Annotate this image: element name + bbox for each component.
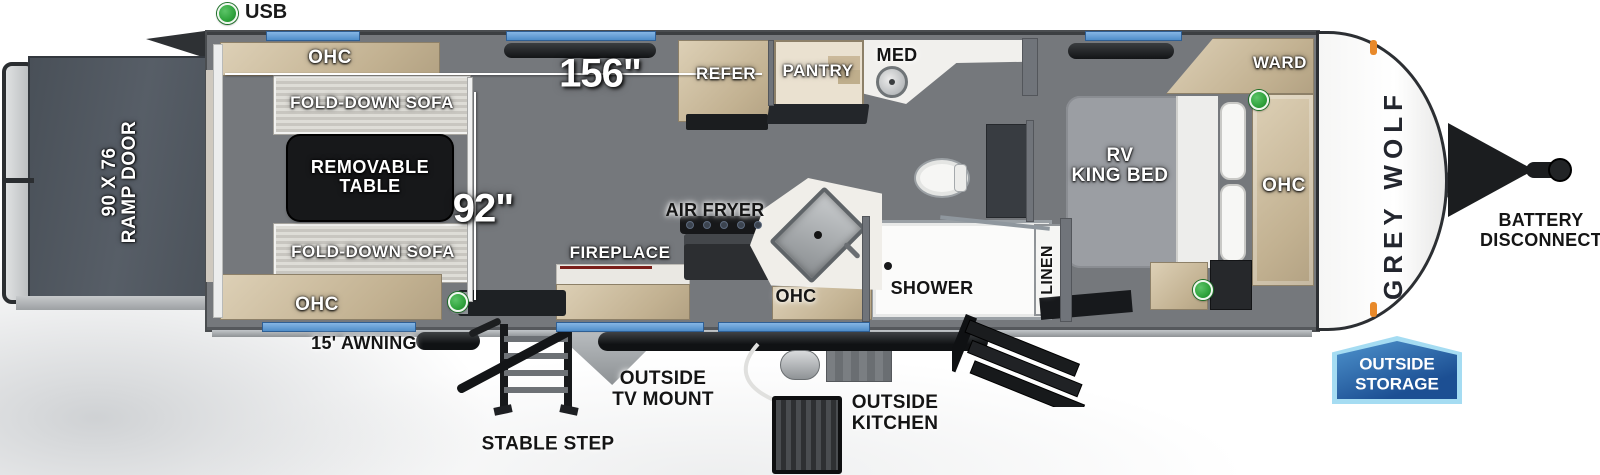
tv-mount-label-line2: TV MOUNT xyxy=(612,389,714,410)
refer-label: REFER xyxy=(696,65,756,83)
usb-legend-icon xyxy=(217,3,238,24)
tv-mount-label-line1: OUTSIDE xyxy=(620,368,707,389)
refrigerator-base xyxy=(686,114,768,130)
outside-kitchen-griddle xyxy=(772,396,842,474)
pantry-label: PANTRY xyxy=(783,62,854,80)
shower-label: SHOWER xyxy=(891,279,974,299)
ramp-door-text: RAMP DOOR xyxy=(119,121,140,243)
usb-legend-label: USB xyxy=(245,1,287,24)
kitchen-sink-drain xyxy=(814,231,822,239)
window-segment xyxy=(556,322,704,332)
ramp-rail-divider xyxy=(4,178,34,183)
window-segment xyxy=(1085,31,1182,41)
storage-label-line2: STORAGE xyxy=(1355,374,1439,393)
pantry-counter xyxy=(767,104,870,124)
garage-ohc-bottom-label: OHC xyxy=(295,295,339,315)
window-segment xyxy=(718,322,870,332)
bed-label-line1: RV xyxy=(1106,145,1133,166)
bath-bedroom-wall-top xyxy=(1022,38,1038,96)
outside-kitchen-label-line1: OUTSIDE xyxy=(852,392,939,413)
marker-light-top xyxy=(1370,40,1377,55)
kitchen-cabinet-left xyxy=(556,284,690,320)
bed-label: RV KING BED xyxy=(1072,146,1169,186)
bedroom-ohc-label: OHC xyxy=(1262,176,1306,196)
air-fryer-label: AIR FRYER xyxy=(665,201,764,221)
outside-kitchen-label-line2: KITCHEN xyxy=(852,413,939,434)
ramp-door-size: 90 X 76 xyxy=(99,148,120,217)
usb-dot xyxy=(448,292,468,312)
shower-left-wall xyxy=(862,216,870,322)
storage-label-line1: OUTSIDE xyxy=(1359,354,1435,373)
bath-bedroom-wall-mid xyxy=(1026,120,1034,222)
ramp-door-frame xyxy=(213,44,223,318)
shower xyxy=(870,220,1052,320)
stove-burner-4 xyxy=(737,221,745,229)
window-segment xyxy=(262,322,416,332)
battery-label-line2: DISCONNECT xyxy=(1480,230,1600,250)
dimension-line-156 xyxy=(225,73,762,75)
bed-label-line2: KING BED xyxy=(1072,165,1169,186)
battery-label-line1: BATTERY xyxy=(1498,210,1583,230)
refer-pantry-wall xyxy=(768,40,774,106)
linen-right-wall xyxy=(1060,218,1072,322)
removable-label-line1: REMOVABLE xyxy=(311,157,429,177)
removable-table-label: REMOVABLE TABLE xyxy=(311,158,429,196)
ward-label: WARD xyxy=(1253,54,1307,72)
outside-kitchen-label: OUTSIDE KITCHEN xyxy=(852,393,939,435)
bed-sheet xyxy=(1176,96,1218,268)
linen-label: LINEN xyxy=(1039,245,1057,295)
stove-burner-5 xyxy=(754,221,762,229)
usb-dot xyxy=(1249,90,1269,110)
toilet-tank xyxy=(954,164,967,192)
window-segment xyxy=(266,31,360,41)
stable-step xyxy=(448,320,593,422)
underbody-box xyxy=(826,348,892,382)
outside-storage-label: OUTSIDE STORAGE xyxy=(1355,354,1439,393)
garage-ohc-top-label: OHC xyxy=(308,48,352,68)
awning-roller-main xyxy=(598,332,988,351)
bedroom-dresser xyxy=(1210,260,1252,310)
med-label: MED xyxy=(877,46,918,66)
awning-label: 15' AWNING xyxy=(311,334,417,354)
battery-disconnect-label: BATTERY DISCONNECT xyxy=(1480,211,1600,251)
dimension-156-label: 156" xyxy=(559,52,641,97)
bathroom-sink-drain xyxy=(889,79,895,85)
removable-label-line2: TABLE xyxy=(339,176,400,196)
ramp-door-sill xyxy=(16,296,212,310)
brand-text: GREY WOLF xyxy=(1378,70,1409,300)
dimension-92-label: 92" xyxy=(453,187,513,232)
stable-step-label: STABLE STEP xyxy=(482,435,615,456)
ramp-door-label: 90 X 76 RAMP DOOR xyxy=(100,121,140,243)
bedroom-tv-bar xyxy=(1068,43,1174,59)
a-frame-icon xyxy=(1448,123,1534,217)
kitchen-ohc-label: OHC xyxy=(776,287,817,307)
usb-dot xyxy=(1193,280,1213,300)
floorplan-canvas: 90 X 76 RAMP DOOR OHC FOLD-DOWN SOFA REM… xyxy=(0,0,1600,475)
fold-down-sofa-top-label: FOLD-DOWN SOFA xyxy=(290,94,454,112)
stove-burner-3 xyxy=(720,221,728,229)
outside-tv-mount-label: OUTSIDE TV MOUNT xyxy=(612,369,714,411)
fold-down-sofa-bottom-label: FOLD-DOWN SOFA xyxy=(291,243,455,261)
entry-steps xyxy=(952,312,1132,407)
coupler-knob-icon xyxy=(1549,159,1571,181)
shower-drain xyxy=(884,262,892,270)
stove-burner-2 xyxy=(703,221,711,229)
bed-pillow-bottom xyxy=(1220,184,1246,262)
bed-pillow-top xyxy=(1220,102,1246,180)
fireplace-label: FIREPLACE xyxy=(570,244,671,262)
marker-light-bottom xyxy=(1370,302,1377,317)
window-segment xyxy=(506,31,656,41)
stove-burner-1 xyxy=(686,221,694,229)
fireplace-strip xyxy=(560,266,652,269)
